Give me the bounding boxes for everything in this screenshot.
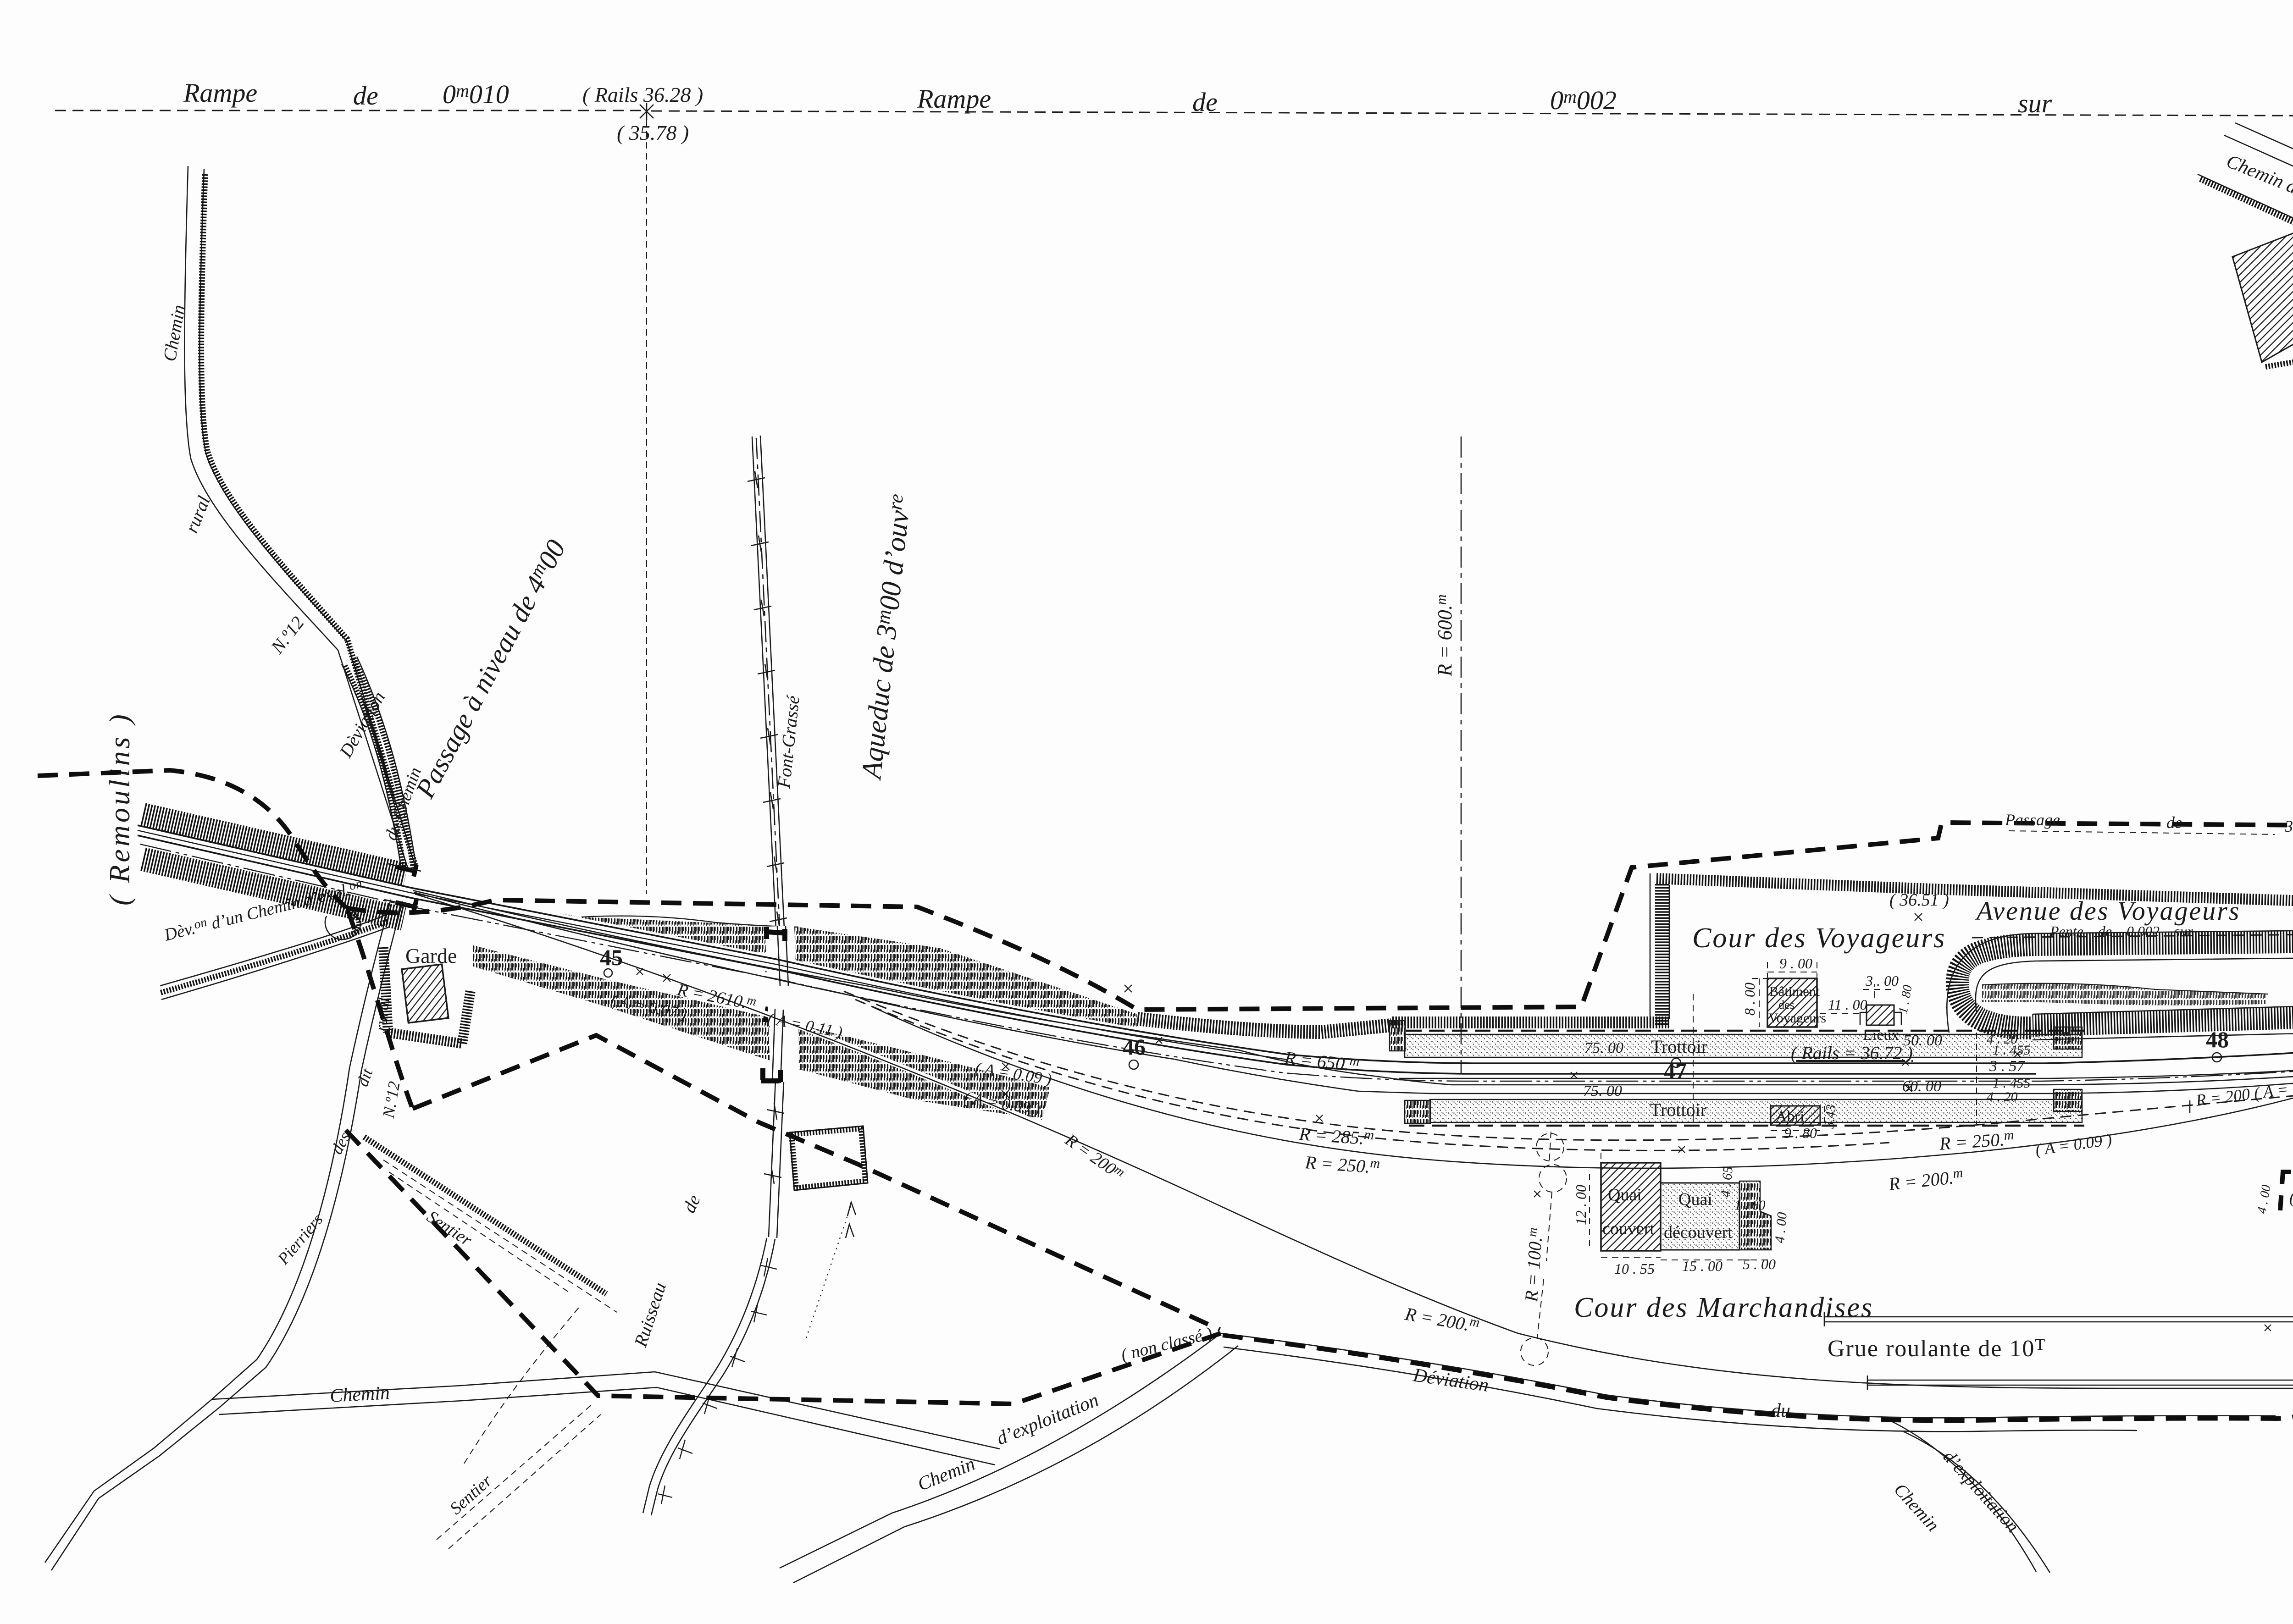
svg-text:4 . 00: 4 . 00 xyxy=(1772,1211,1790,1243)
svg-text:Pente de 0.002 sur: Pente de 0.002 sur xyxy=(2049,923,2193,939)
svg-text:couvert: couvert xyxy=(1602,1219,1655,1238)
svg-text:Voyageurs: Voyageurs xyxy=(1768,1011,1826,1026)
svg-text:Quai: Quai xyxy=(1608,1185,1642,1204)
svg-text:( Remoulins ): ( Remoulins ) xyxy=(103,712,136,906)
svg-text:sur: sur xyxy=(2018,88,2052,118)
svg-text:3 . 57: 3 . 57 xyxy=(1989,1058,2026,1075)
svg-text:75. 00: 75. 00 xyxy=(1584,1039,1623,1056)
svg-text:46: 46 xyxy=(1123,1034,1146,1060)
svg-text:60. 00: 60. 00 xyxy=(1902,1078,1941,1095)
svg-text:du: du xyxy=(1771,1400,1790,1421)
svg-text:des: des xyxy=(1778,998,1795,1011)
svg-text:de: de xyxy=(353,81,378,110)
svg-text:de: de xyxy=(1192,87,1218,117)
svg-text:11 . 00: 11 . 00 xyxy=(1828,996,1867,1013)
svg-text:( Rails = 36.72 ): ( Rails = 36.72 ) xyxy=(1791,1043,1913,1063)
svg-text:9 . 00: 9 . 00 xyxy=(1779,955,1812,972)
svg-text:48: 48 xyxy=(2206,1027,2229,1052)
svg-text:1 . 60: 1 . 60 xyxy=(1734,1198,1766,1213)
svg-text:8 . 00: 8 . 00 xyxy=(1741,983,1758,1016)
svg-text:12 . 00: 12 . 00 xyxy=(1573,1185,1589,1225)
svg-text:Chemin: Chemin xyxy=(329,1382,390,1407)
svg-text:4 . 20: 4 . 20 xyxy=(1987,1089,2018,1105)
svg-text:Trottoir: Trottoir xyxy=(1650,1099,1706,1120)
svg-text:R = 600.m: R = 600.m xyxy=(1433,594,1456,677)
svg-text:Garde: Garde xyxy=(405,944,457,967)
svg-text:Rampe: Rampe xyxy=(183,78,257,108)
svg-text:Passage: Passage xyxy=(2005,811,2060,829)
svg-text:Abri: Abri xyxy=(1776,1108,1804,1125)
svg-text:3 . 00: 3 . 00 xyxy=(1865,972,1899,989)
svg-text:0m010: 0m010 xyxy=(443,79,509,109)
svg-text:Rampe: Rampe xyxy=(917,84,991,114)
svg-text:découvert: découvert xyxy=(1664,1223,1733,1242)
svg-text:1 . 455: 1 . 455 xyxy=(1993,1043,2031,1058)
svg-text:4 . 65: 4 . 65 xyxy=(1718,1166,1736,1198)
svg-text:15 . 00: 15 . 00 xyxy=(1682,1258,1723,1274)
svg-text:( 35.78 ): ( 35.78 ) xyxy=(617,121,689,144)
svg-text:( 36.51 ): ( 36.51 ) xyxy=(1889,890,1949,910)
svg-text:( 36.86 ): ( 36.86 ) xyxy=(2289,1188,2293,1207)
svg-text:Bâtiment: Bâtiment xyxy=(1769,984,1820,999)
svg-text:Cour des Marchandises: Cour des Marchandises xyxy=(1574,1292,1873,1323)
svg-text:de: de xyxy=(2166,813,2182,832)
svg-text:( Rails 36.28 ): ( Rails 36.28 ) xyxy=(582,83,703,106)
svg-text:47: 47 xyxy=(1664,1058,1687,1083)
svg-text:Cour des Voyageurs: Cour des Voyageurs xyxy=(1692,922,1946,954)
svg-text:0m002: 0m002 xyxy=(1550,85,1617,115)
svg-text:9 . 80: 9 . 80 xyxy=(1784,1125,1817,1141)
svg-text:Grue roulante de 10T: Grue roulante de 10T xyxy=(1828,1335,2046,1362)
svg-text:10 . 55: 10 . 55 xyxy=(1614,1260,1655,1277)
svg-text:45: 45 xyxy=(600,945,623,970)
svg-text:3m00: 3m00 xyxy=(2284,817,2293,835)
svg-text:Avenue des Voyageurs: Avenue des Voyageurs xyxy=(1975,896,2240,926)
svg-text:Quai: Quai xyxy=(1678,1190,1712,1209)
svg-text:5 . 00: 5 . 00 xyxy=(1743,1256,1776,1272)
svg-text:Trottoir: Trottoir xyxy=(1651,1036,1707,1057)
